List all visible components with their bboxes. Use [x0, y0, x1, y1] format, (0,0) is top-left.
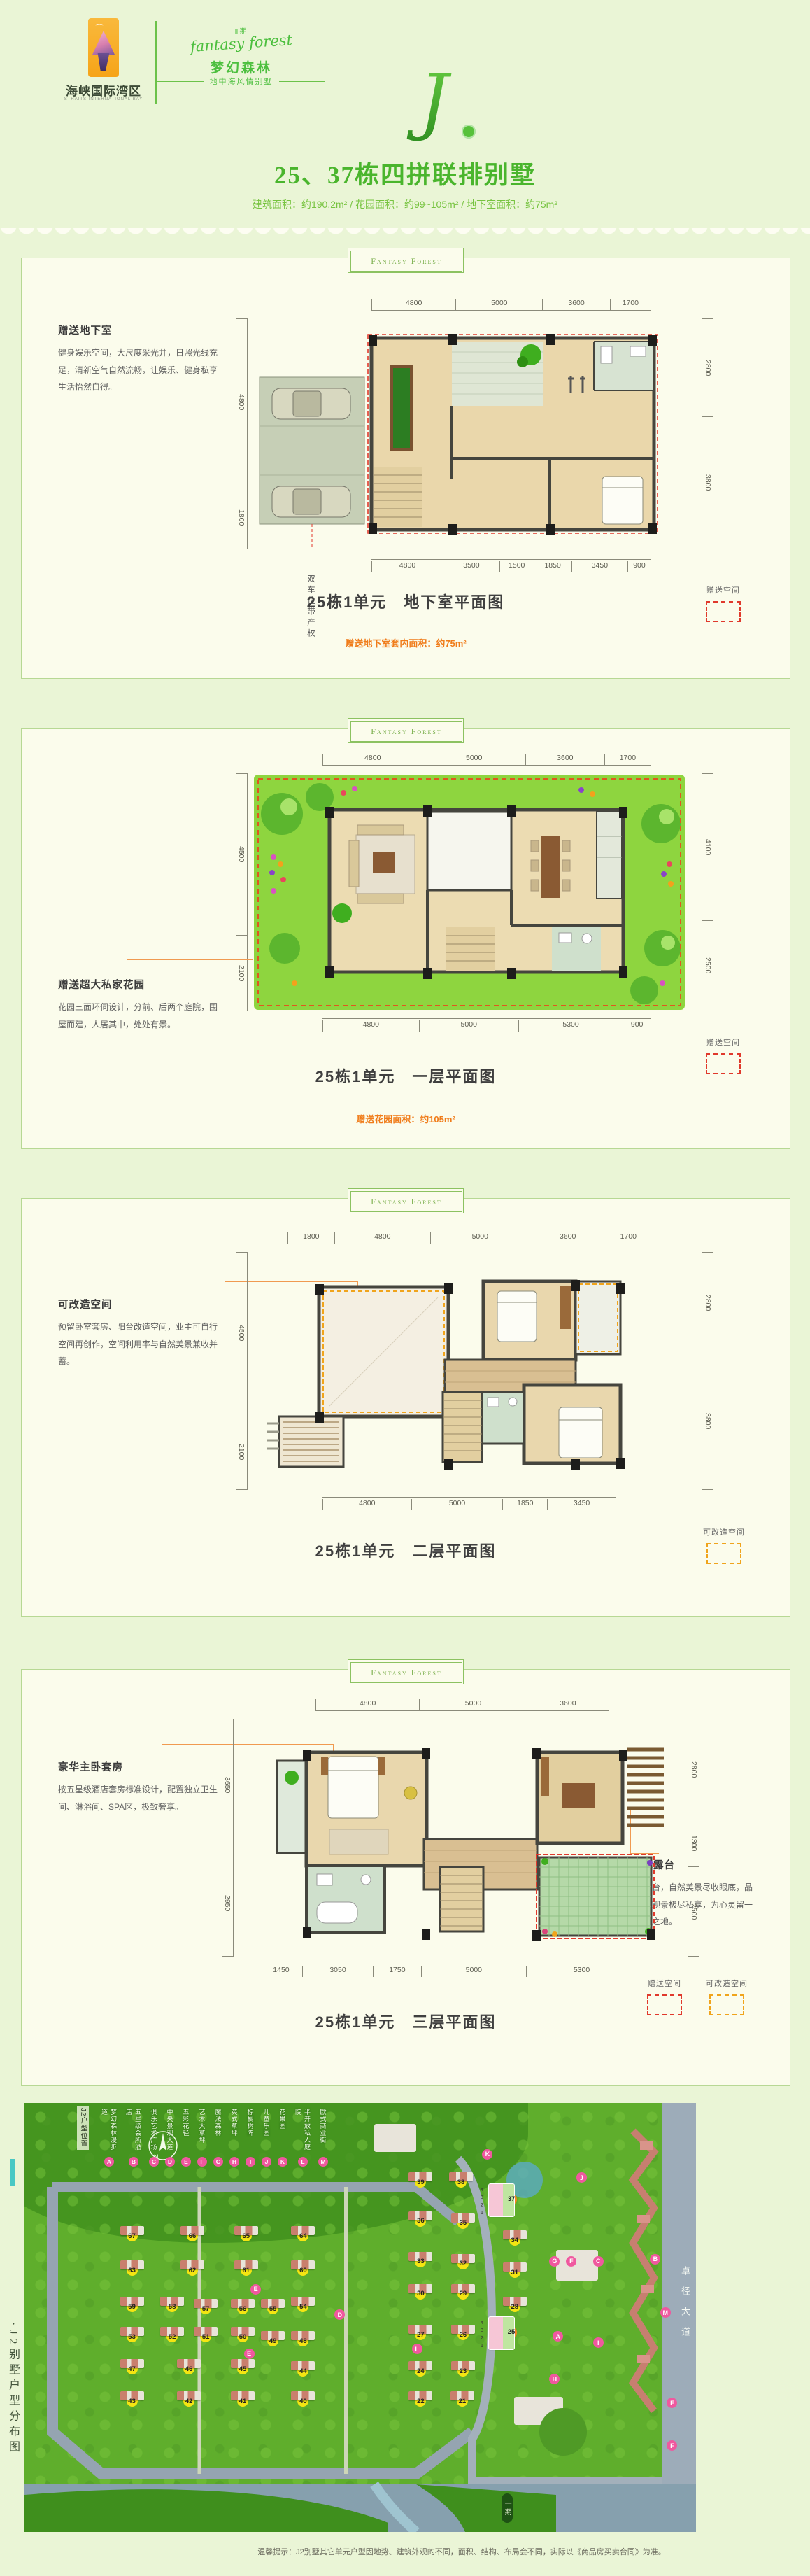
note-body: 花园三面环伺设计，分前、后两个庭院，围屋而建，人居其中，处处有景。 [58, 999, 222, 1033]
dims-right: 41002500 [702, 773, 713, 1011]
remodel-legend-swatch [706, 1543, 741, 1564]
teal-swatch [10, 2159, 15, 2186]
building-number-marker: 23 [457, 2365, 469, 2377]
building-number-marker: 31 [509, 2267, 520, 2278]
highlight-basement: 赠送地下室套内面积：约75m² [22, 636, 790, 649]
card-floor3: Fantasy Forest 豪华主卧套房 按五星级酒店套房标准设计，配置独立卫… [21, 1669, 790, 2086]
unit-strip-37: 4321 [478, 2186, 485, 2216]
gift-space-legend: 赠送空间 [706, 584, 741, 622]
building-number-marker: 62 [187, 2265, 198, 2276]
map-legend-item: 半开放私人庭院L [294, 2109, 312, 2167]
sitemap-title: ·J2别墅户型分布图 [4, 2322, 21, 2456]
gift-legend-swatch [706, 1053, 741, 1074]
building-number-marker: 36 [415, 2216, 426, 2227]
building-number-marker: 29 [457, 2288, 469, 2300]
garden-note: 赠送超大私家花园 花园三面环伺设计，分前、后两个庭院，围屋而建，人居其中，处处有… [58, 977, 233, 1033]
remodel-space-legend: 可改造空间 [706, 1978, 748, 2015]
gift-space-legend: 赠送空间 [647, 1978, 682, 2015]
remodel-note: 可改造空间 预留卧室套房、阳台改造空间，业主可自行空间再创作，空间利用率与自然美… [58, 1297, 233, 1370]
island-reflection-icon [94, 53, 113, 71]
note-body: 健身娱乐空间，大尺度采光井，日照光线充足，清新空气自然流畅，让娱乐、健身私享生活… [58, 344, 222, 396]
dims-top: 18004800500036001700 [287, 1232, 651, 1244]
monogram-seal-icon [462, 125, 476, 139]
building-number-marker: 25 [506, 2327, 517, 2338]
map-legend-item: 棕榈树阵I [246, 2109, 255, 2167]
map-legend-item: 英式草坪H [229, 2109, 239, 2167]
building-number-marker: 41 [237, 2395, 248, 2407]
brochure-page: 海峡国际湾区 STRAITS INTERNATIONAL BAY Ⅱ期 fant… [0, 0, 810, 2576]
note-title: 可改造空间 [58, 1297, 233, 1311]
map-legend-item: 花果园K [278, 2109, 287, 2167]
dims-left: 48001800 [236, 318, 248, 549]
building-number-marker: 50 [237, 2331, 248, 2342]
bird-icon [95, 24, 104, 27]
gift-legend-swatch [706, 601, 741, 622]
amenity-letter-marker: E [250, 2284, 261, 2295]
note-connector-line [127, 959, 253, 960]
unit-strip-25: 4321 [478, 2318, 485, 2349]
building-number-marker: 45 [237, 2363, 248, 2374]
building-number-marker: 53 [127, 2331, 138, 2342]
building-number-marker: 37 [506, 2194, 517, 2205]
map-legend-item: 儿童乐园J [262, 2109, 271, 2167]
dims-top: 480050003600 [315, 1699, 609, 1711]
mountain-icon [92, 31, 115, 55]
amenity-letter-marker: L [412, 2344, 422, 2354]
caption-floor1: 25栋1单元 一层平面图 [22, 1064, 790, 1087]
amenity-letter-marker: E [244, 2349, 255, 2359]
page-title: 25、37栋四拼联排别墅 [0, 155, 810, 191]
gift-space-legend: 赠送空间 [706, 1036, 741, 1074]
map-legend-item: 梦幻森林漫步道A [100, 2109, 118, 2167]
caption-floor2: 25栋1单元 二层平面图 [22, 1539, 790, 1561]
phase-one-pill: 一期 [502, 2493, 513, 2523]
amenity-letter-marker: K [482, 2149, 492, 2160]
building-number-marker: 34 [509, 2234, 520, 2246]
highlight-floor1: 赠送花园面积：约105m² [22, 1112, 790, 1125]
building-number-marker: 66 [187, 2230, 198, 2241]
dims-bottom: 14503050175050005300 [260, 1964, 637, 1977]
logo-name-en: STRAITS INTERNATIONAL BAY [60, 97, 147, 101]
building-number-marker: 67 [127, 2230, 138, 2241]
tagline-rule-left [157, 81, 204, 82]
building-number-marker: 59 [127, 2301, 138, 2312]
dims-right: 280013002500 [688, 1719, 699, 1957]
page-subtitle: 建筑面积：约190.2m² / 花园面积：约99~105m² / 地下室面积：约… [0, 197, 810, 211]
basement-note: 赠送地下室 健身娱乐空间，大尺度采光井，日照光线充足，清新空气自然流畅，让娱乐、… [58, 323, 233, 396]
dims-bottom: 480050005300900 [322, 1018, 651, 1032]
floor2-plan: 18004800500036001700 [232, 1228, 721, 1529]
road-name-right: 卓径大道 [678, 2266, 692, 2347]
dims-top: 4800500036001700 [322, 754, 651, 766]
map-roads-drawing [24, 2103, 696, 2532]
caption-basement: 25栋1单元 地下室平面图 [22, 590, 790, 612]
floor2-floorplan-drawing [253, 1252, 686, 1490]
floor1-plan: 4800500036001700 [232, 749, 721, 1050]
building-number-marker: 35 [457, 2218, 469, 2229]
scallop-border [0, 228, 810, 239]
card-floor2: Fantasy Forest 可改造空间 预留卧室套房、阳台改造空间，业主可自行… [21, 1198, 790, 1617]
fantasy-forest-badge: Fantasy Forest [348, 718, 464, 743]
dims-left: 36502950 [222, 1719, 234, 1957]
brand-name-cn: 梦幻森林 [171, 57, 311, 76]
note-title: 赠送地下室 [58, 323, 233, 337]
note-body: 预留卧室套房、阳台改造空间，业主可自行空间再创作，空间利用率与自然美景兼收并蓄。 [58, 1318, 222, 1370]
card-basement: Fantasy Forest 赠送地下室 健身娱乐空间，大尺度采光井，日照光线充… [21, 258, 790, 679]
amenity-letter-marker: C [593, 2256, 604, 2267]
fantasy-forest-badge: Fantasy Forest [348, 1659, 464, 1684]
dims-bottom: 48003500150018503450900 [371, 559, 651, 572]
building-number-marker: 43 [127, 2395, 138, 2407]
header-divider [155, 21, 157, 104]
dims-right: 28003800 [702, 1252, 713, 1490]
map-corner-label: J2户型位置 [77, 2106, 89, 2150]
fantasy-forest-badge: Fantasy Forest [348, 248, 464, 273]
floor3-floorplan-drawing [239, 1719, 672, 1957]
floor1-floorplan-drawing [253, 773, 686, 1011]
dims-top: 4800500036001700 [371, 299, 651, 311]
amenity-letter-marker: I [593, 2337, 604, 2348]
building-number-marker: 32 [457, 2258, 469, 2269]
map-legend-item: 中央景观大道D [165, 2109, 175, 2167]
dims-right: 28003800 [702, 318, 713, 549]
dims-left: 45002100 [236, 1252, 248, 1490]
fantasy-forest-badge: Fantasy Forest [348, 1188, 464, 1213]
floor3-plan: 480050003600 [218, 1695, 707, 1996]
dims-left: 45002100 [236, 773, 248, 1011]
basement-plan: 4800500036001700 [232, 295, 721, 589]
building-number-marker: 61 [241, 2265, 252, 2276]
building-number-marker: 28 [509, 2301, 520, 2312]
remodel-legend-swatch [709, 1994, 744, 2015]
basement-floorplan-drawing [253, 318, 686, 549]
site-map: J2户型位置 N 梦幻森林漫步道A 五星级会所酒店B 俱乐艺术广场C 中央景观大… [24, 2103, 696, 2532]
remodel-space-legend: 可改造空间 [703, 1526, 745, 1564]
building-number-marker: 21 [457, 2395, 468, 2407]
building-number-marker: 63 [127, 2265, 138, 2276]
map-legend-item: 五星级会所酒店B [125, 2109, 143, 2167]
map-legend-item: 俱乐艺术广场C [149, 2109, 159, 2167]
logo-name-cn: 海峡国际湾区 [60, 81, 147, 99]
floor3-legends: 赠送空间 可改造空间 [647, 1978, 748, 2015]
map-legend-item: 五彩花径E [181, 2109, 191, 2167]
card-floor1: Fantasy Forest 4800500036001700 [21, 728, 790, 1149]
building-number-marker: 26 [457, 2329, 469, 2340]
map-legend: 梦幻森林漫步道A 五星级会所酒店B 俱乐艺术广场C 中央景观大道D 五彩花径E … [100, 2109, 328, 2167]
disclaimer: 温馨提示：J2别墅其它单元户型因地势、建筑外观的不同，面积、结构、布局会不同，实… [126, 2546, 797, 2557]
map-legend-item: 魔法森林G [213, 2109, 223, 2167]
note-title: 赠送超大私家花园 [58, 977, 233, 992]
map-legend-item: 艺术大草坪F [197, 2109, 207, 2167]
map-legend-item: 欧式商业街M [318, 2109, 328, 2167]
tagline-rule-right [279, 81, 326, 82]
gift-legend-swatch [647, 1994, 682, 2015]
building-number-marker: 47 [127, 2363, 138, 2374]
building-number-marker: 65 [241, 2230, 252, 2241]
brand-tagline: 地中海风情别墅 [157, 76, 325, 87]
amenity-letter-marker: J [576, 2172, 587, 2183]
project-logo [88, 18, 119, 77]
dims-bottom: 4800500018503450 [322, 1497, 616, 1510]
